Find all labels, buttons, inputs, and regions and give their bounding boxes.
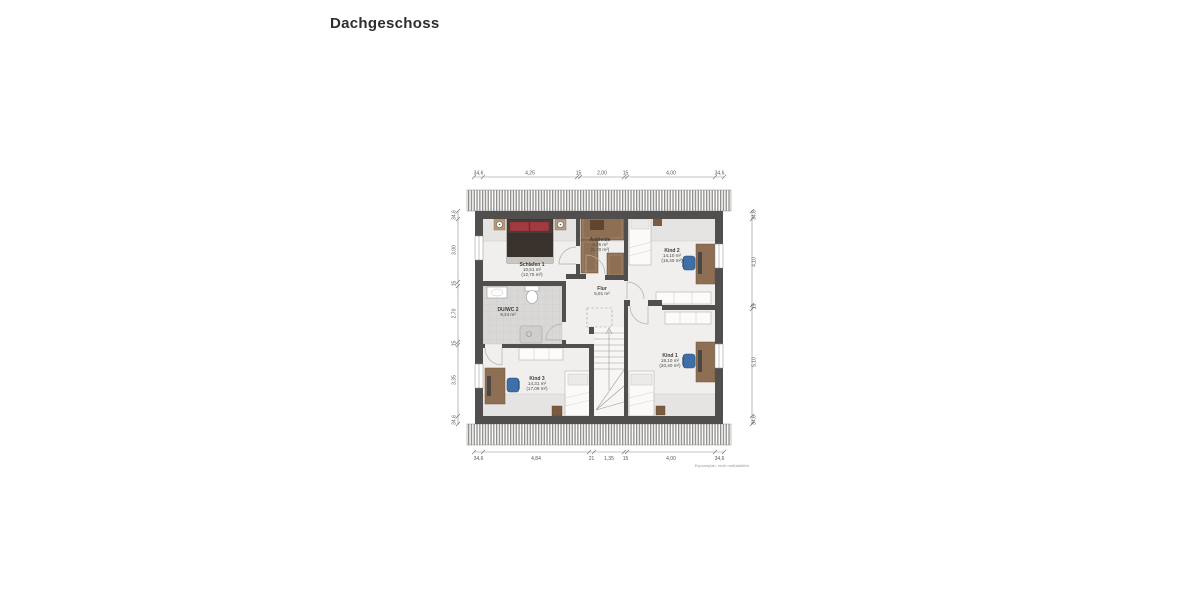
svg-text:34,6: 34,6 <box>474 171 484 177</box>
room-label-ankleide: Ankleide 4,55 m² (5,70 m²) <box>590 237 611 252</box>
svg-text:15: 15 <box>623 171 629 177</box>
wall-duwc-right-a <box>562 281 566 322</box>
roof-hatch-bottom <box>467 424 731 445</box>
window-kind3 <box>475 364 483 388</box>
wardrobe-kind3 <box>519 348 563 360</box>
bed-kind1 <box>629 371 654 416</box>
shower <box>520 326 542 343</box>
window-kind2 <box>715 244 723 268</box>
nightstand-right <box>555 219 566 230</box>
office-chair-kind1 <box>683 354 695 368</box>
svg-text:(20,40 m²): (20,40 m²) <box>659 363 681 368</box>
dimension-labels-top: 34,6 4,25 15 2,00 15 4,00 34,6 <box>474 171 725 177</box>
svg-text:4,84: 4,84 <box>531 456 541 462</box>
svg-text:15: 15 <box>623 456 629 462</box>
svg-text:4,10: 4,10 <box>752 257 758 267</box>
wardrobe-kind1 <box>665 312 711 324</box>
bed-kind2 <box>629 217 651 265</box>
svg-text:4,00: 4,00 <box>666 171 676 177</box>
desk-kind2 <box>696 244 715 284</box>
wall-flur-north <box>566 274 586 279</box>
wall-stair-left-jamb <box>589 327 594 334</box>
svg-text:4,25: 4,25 <box>525 171 535 177</box>
dimension-labels-left: 34,6 3,00 15 2,70 15 3,35 34,6 <box>452 210 458 425</box>
wall-kind3-top-a <box>475 344 485 348</box>
desk-kind1 <box>696 342 715 382</box>
window-kind1 <box>715 344 723 368</box>
svg-text:34,6: 34,6 <box>452 210 458 220</box>
office-chair-kind3 <box>507 378 519 392</box>
dimension-labels-bottom: 34,6 4,84 21 1,35 15 4,00 34,6 <box>474 456 725 462</box>
svg-text:2,00: 2,00 <box>597 171 607 177</box>
wall-knee-top <box>475 211 723 219</box>
wall-knee-bottom <box>475 416 723 424</box>
svg-text:(16,40 m²): (16,40 m²) <box>661 258 683 263</box>
wall-kind2-kind1 <box>662 305 715 310</box>
office-chair-kind2 <box>683 256 695 270</box>
wall-stair-right <box>624 306 628 416</box>
wardrobe-kind2 <box>656 292 711 304</box>
svg-text:15: 15 <box>452 341 458 347</box>
wall-stair-left <box>589 344 594 416</box>
wall-kind1-north-b <box>648 300 662 306</box>
wall-schlafen-ankleide <box>576 219 580 246</box>
floorplan-drawing: Schlafen 1 10,51 m² (12,75 m²) Ankleide … <box>440 150 770 480</box>
desk-kind3 <box>485 368 505 404</box>
room-label-duwc2: DU/WC 2 9,24 m² <box>497 307 518 317</box>
wall-schlafen-ankleide-stub <box>576 264 580 274</box>
svg-text:4,00: 4,00 <box>666 456 676 462</box>
double-bed <box>507 219 553 263</box>
wall-ankleide-south <box>605 275 627 280</box>
svg-text:5,10: 5,10 <box>752 357 758 367</box>
page-title: Dachgeschoss <box>330 15 439 32</box>
svg-text:15: 15 <box>452 281 458 287</box>
window-schlafen <box>475 236 483 260</box>
nightstand-kind3 <box>552 406 562 416</box>
nightstand-kind1 <box>656 406 665 415</box>
plan-footnote: Exposéplan, nicht maßstäblich <box>695 463 749 468</box>
nightstand-left <box>494 219 505 230</box>
svg-text:3,35: 3,35 <box>452 375 458 385</box>
svg-text:3,00: 3,00 <box>452 245 458 255</box>
wall-gable-right <box>715 211 723 424</box>
floorplan-page: { "header": { "title": "Dachgeschoss" },… <box>0 0 1200 600</box>
wall-kind1-north-a <box>624 300 630 306</box>
svg-text:(12,75 m²): (12,75 m²) <box>521 272 543 277</box>
svg-text:1,35: 1,35 <box>604 456 614 462</box>
svg-text:(17,09 m²): (17,09 m²) <box>526 386 548 391</box>
svg-text:9,24 m²: 9,24 m² <box>500 312 516 317</box>
svg-text:34,6: 34,6 <box>715 171 725 177</box>
roof-hatch-top <box>467 190 731 211</box>
room-label-schlafen1: Schlafen 1 10,51 m² (12,75 m²) <box>519 262 544 277</box>
svg-text:15: 15 <box>752 304 758 310</box>
svg-text:34,6: 34,6 <box>752 415 758 425</box>
svg-text:(5,70 m²): (5,70 m²) <box>591 247 610 252</box>
svg-text:21: 21 <box>589 456 595 462</box>
svg-text:15: 15 <box>576 171 582 177</box>
washbasin <box>487 287 507 298</box>
svg-text:5,91 m²: 5,91 m² <box>594 291 610 296</box>
floorplan-svg: Schlafen 1 10,51 m² (12,75 m²) Ankleide … <box>440 150 770 480</box>
wall-duwc-top <box>475 281 566 286</box>
svg-text:34,6: 34,6 <box>752 210 758 220</box>
wall-duwc-right-b <box>562 340 566 344</box>
bed-kind3 <box>565 371 591 416</box>
svg-text:34,6: 34,6 <box>474 456 484 462</box>
svg-text:34,6: 34,6 <box>452 415 458 425</box>
svg-text:2,70: 2,70 <box>452 308 458 318</box>
svg-text:34,6: 34,6 <box>715 456 725 462</box>
wall-kind2-west <box>624 219 628 281</box>
wall-kind3-top-b <box>502 344 594 348</box>
dimension-labels-right: 34,6 4,10 15 5,10 34,6 <box>752 210 758 425</box>
